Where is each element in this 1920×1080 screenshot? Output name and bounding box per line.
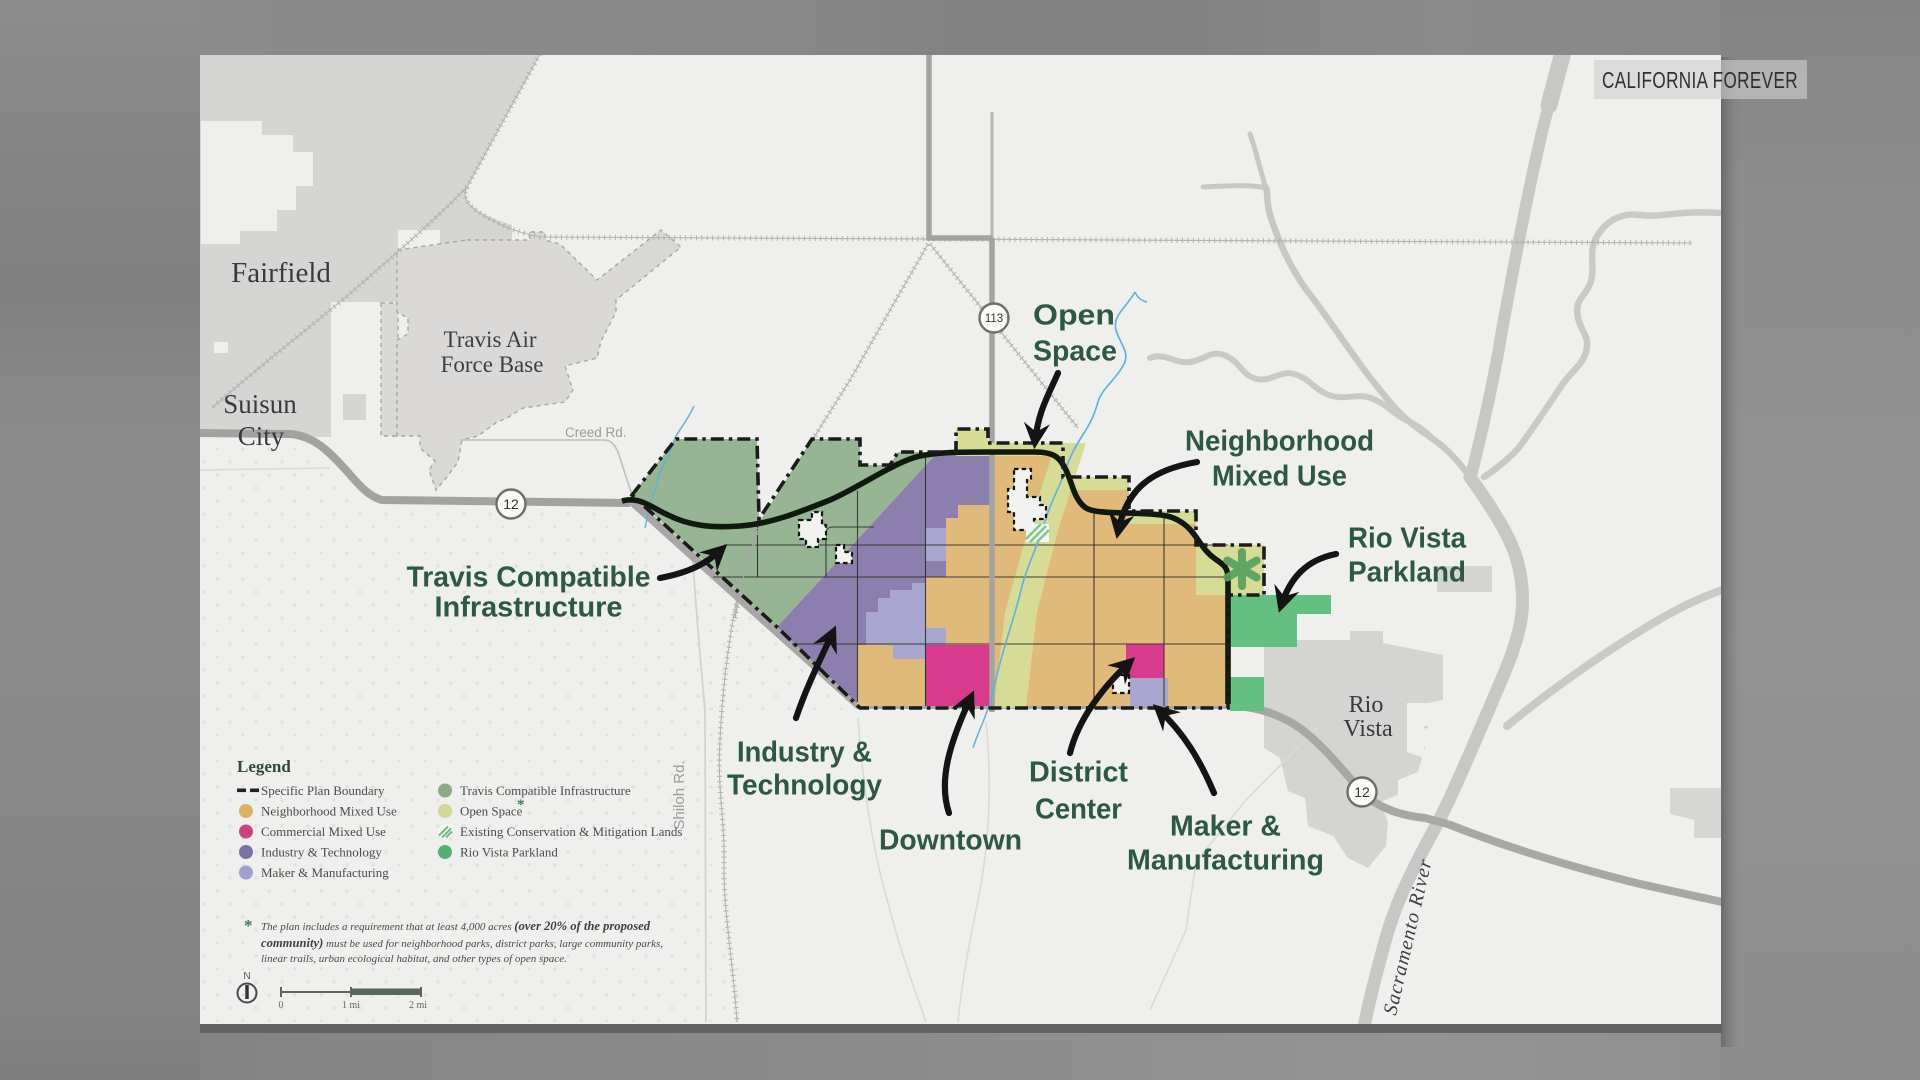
svg-text:Space: Space	[1033, 336, 1117, 368]
svg-text:Force Base: Force Base	[441, 352, 544, 377]
svg-text:Center: Center	[1035, 794, 1122, 826]
svg-text:12: 12	[1354, 784, 1370, 800]
svg-text:Travis Air: Travis Air	[443, 327, 536, 352]
svg-text:Maker &: Maker &	[1170, 811, 1281, 843]
svg-text:Technology: Technology	[727, 770, 882, 802]
svg-text:Open: Open	[1033, 300, 1115, 332]
svg-text:Fairfield: Fairfield	[231, 257, 331, 289]
svg-text:CALIFORNIA FOREVER: CALIFORNIA FOREVER	[1602, 67, 1798, 93]
svg-text:community) must be used for ne: community) must be used for neighborhood…	[261, 936, 663, 950]
svg-text:Existing Conservation & Mitiga: Existing Conservation & Mitigation Lands	[460, 824, 682, 839]
svg-text:Commercial Mixed Use: Commercial Mixed Use	[261, 824, 386, 839]
svg-text:Rio: Rio	[1349, 692, 1384, 718]
svg-text:Industry & Technology: Industry & Technology	[261, 845, 382, 860]
svg-text:Maker & Manufacturing: Maker & Manufacturing	[261, 865, 389, 880]
svg-text:District: District	[1029, 757, 1128, 789]
svg-text:Travis Compatible: Travis Compatible	[407, 562, 651, 594]
svg-text:N: N	[243, 971, 250, 982]
svg-text:Neighborhood: Neighborhood	[1185, 426, 1374, 458]
svg-text:The plan includes a requiremen: The plan includes a requirement that at …	[261, 919, 651, 933]
svg-text:Legend: Legend	[237, 757, 291, 776]
svg-text:12: 12	[503, 496, 519, 512]
svg-text:linear trails, urban ecologica: linear trails, urban ecological habitat,…	[261, 953, 567, 965]
svg-text:113: 113	[985, 313, 1003, 325]
svg-text:Manufacturing: Manufacturing	[1127, 845, 1324, 877]
svg-text:Rio Vista Parkland: Rio Vista Parkland	[460, 845, 558, 860]
svg-text:Suisun: Suisun	[223, 389, 297, 419]
svg-text:0: 0	[279, 1000, 284, 1011]
svg-text:Vista: Vista	[1343, 716, 1393, 742]
svg-text:Open Space: Open Space	[460, 804, 523, 819]
svg-text:Creed Rd.: Creed Rd.	[565, 425, 627, 440]
svg-text:Specific Plan Boundary: Specific Plan Boundary	[261, 783, 385, 798]
svg-text:1 mi: 1 mi	[342, 1000, 360, 1011]
svg-text:Mixed Use: Mixed Use	[1212, 461, 1347, 493]
svg-text:Rio Vista: Rio Vista	[1348, 523, 1467, 555]
svg-text:Travis Compatible Infrastructu: Travis Compatible Infrastructure	[460, 783, 631, 798]
svg-text:*: *	[517, 797, 525, 813]
svg-text:Industry &: Industry &	[737, 737, 872, 769]
svg-text:Parkland: Parkland	[1348, 557, 1466, 589]
svg-text:Neighborhood Mixed Use: Neighborhood Mixed Use	[261, 804, 397, 819]
svg-text:Infrastructure: Infrastructure	[435, 592, 623, 624]
svg-text:2 mi: 2 mi	[409, 1000, 427, 1011]
svg-text:Downtown: Downtown	[879, 825, 1022, 857]
svg-text:City: City	[238, 421, 285, 451]
svg-text:*: *	[244, 916, 253, 935]
svg-text:Shiloh Rd.: Shiloh Rd.	[671, 760, 688, 829]
